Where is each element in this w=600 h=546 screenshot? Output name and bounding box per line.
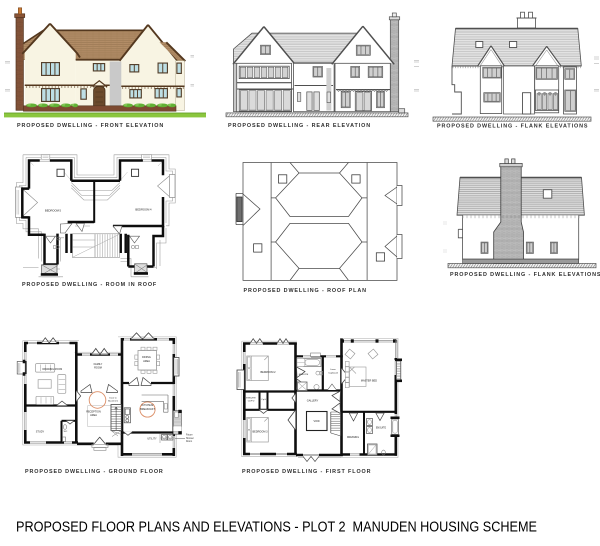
svg-text:DINING: DINING	[142, 356, 151, 359]
svg-text:UTILITY: UTILITY	[147, 437, 157, 440]
svg-text:ENSUITE: ENSUITE	[376, 428, 386, 430]
svg-text:PROPOSED DWELLING - FIRST F: PROPOSED DWELLING - FIRST FLOOR	[242, 469, 371, 475]
svg-text:AREA: AREA	[143, 360, 150, 363]
svg-text:BREAKFAST: BREAKFAST	[140, 408, 155, 411]
svg-text:PROPOSED DWELLING - FLANK E: PROPOSED DWELLING - FLANK ELEVATIONS	[437, 124, 588, 130]
svg-text:DRAWING ROOM: DRAWING ROOM	[43, 368, 63, 371]
svg-text:PROPOSED DWELLING - GROUND: PROPOSED DWELLING - GROUND FLOOR	[25, 469, 164, 475]
svg-text:MASTER BED: MASTER BED	[361, 379, 377, 382]
svg-text:BEDROOM 2: BEDROOM 2	[260, 371, 276, 374]
svg-text:KITCHEN/: KITCHEN/	[142, 404, 154, 407]
svg-text:AREA: AREA	[90, 414, 97, 417]
svg-text:PROPOSED DWELLING - FLANK E: PROPOSED DWELLING - FLANK ELEVATIONS	[450, 272, 600, 278]
svg-text:RECEPTION: RECEPTION	[86, 410, 101, 413]
svg-text:VOID: VOID	[313, 420, 319, 423]
svg-text:PROPOSED DWELLING - ROOF PLA: PROPOSED DWELLING - ROOF PLAN	[244, 288, 367, 294]
svg-text:Cupboard: Cupboard	[328, 371, 338, 374]
svg-text:PROPOSED FLOOR PLANS AND ELEVA: PROPOSED FLOOR PLANS AND ELEVATIONS - PL…	[16, 519, 537, 536]
svg-text:BEDROOM 4: BEDROOM 4	[135, 207, 152, 211]
svg-text:ROOM: ROOM	[94, 367, 102, 370]
svg-text:Room: Room	[186, 441, 192, 443]
svg-text:PROPOSED DWELLING - REAR EL: PROPOSED DWELLING - REAR ELEVATION	[228, 123, 371, 129]
svg-text:Future: Future	[186, 433, 193, 436]
svg-text:STUDY: STUDY	[36, 430, 45, 433]
svg-text:CUP'D: CUP'D	[248, 401, 255, 403]
svg-text:FAMILY: FAMILY	[94, 363, 103, 366]
svg-text:Basement: Basement	[108, 400, 118, 403]
svg-text:PROPOSED DWELLING - FRONT E: PROPOSED DWELLING - FRONT ELEVATION	[17, 123, 164, 129]
svg-text:PROPOSED DWELLING - ROOM IN: PROPOSED DWELLING - ROOM IN ROOF	[22, 282, 157, 288]
svg-text:Door to: Door to	[109, 396, 117, 399]
svg-text:DRESSING: DRESSING	[347, 437, 359, 439]
svg-text:ENSUITE: ENSUITE	[246, 397, 256, 399]
svg-text:BEDROOM 3: BEDROOM 3	[252, 430, 268, 433]
svg-text:Shower: Shower	[186, 437, 194, 440]
svg-text:Linen: Linen	[330, 369, 336, 371]
svg-text:GALLERY: GALLERY	[307, 399, 319, 402]
svg-text:Cp'd: Cp'd	[261, 399, 266, 401]
svg-text:ENSUITE: ENSUITE	[299, 374, 309, 376]
svg-text:WC: WC	[64, 431, 68, 433]
svg-text:BEDROOM 5: BEDROOM 5	[45, 208, 62, 212]
